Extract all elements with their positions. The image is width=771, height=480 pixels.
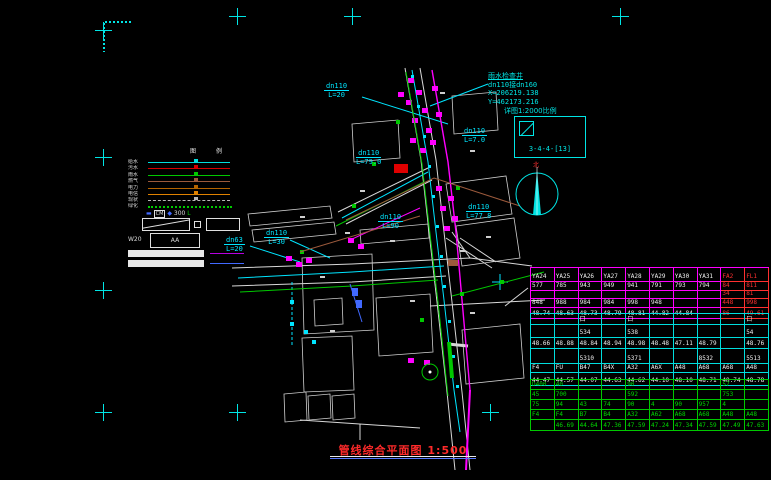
table-cell: 34 (721, 291, 745, 299)
table-cell: 957 (698, 400, 722, 410)
frame-cross-icon (95, 149, 112, 166)
table-cell: 4 (721, 400, 745, 410)
table-cell: 47.59 (698, 420, 722, 431)
table-cell: 48.76 (745, 338, 769, 349)
legend-item-line (148, 200, 230, 201)
title-underline-2 (330, 458, 476, 459)
table-cell: 8532 (698, 349, 722, 364)
pipe-label: dn110L=30 (264, 229, 289, 246)
table-cell (721, 338, 745, 349)
table-cell: FL1 (745, 268, 769, 282)
table-cell: 48.98 (626, 338, 650, 349)
frame-cross-icon (229, 8, 246, 25)
table-section: D4004090574570059275375944374904909574F4… (530, 379, 769, 431)
table-cell (555, 314, 579, 325)
frame-cross-icon (95, 404, 112, 421)
table-cell: 811 (745, 282, 769, 291)
pipe-label: dn63L=20 (224, 236, 245, 253)
table-cell: 40 (555, 380, 579, 390)
table-cell: A68 (674, 410, 698, 420)
frame-cross-icon (95, 22, 112, 39)
table-cell (579, 291, 603, 299)
pipe-label: dn110L=7.0 (462, 127, 487, 144)
coordinate-annotation: 雨水检查井 dn110接dn160 X=206219.138 Y=462173.… (488, 72, 539, 106)
table-cell (602, 325, 626, 338)
legend-item-label: 雨水 (128, 172, 146, 178)
legend-item-marker (194, 165, 198, 168)
table-cell: 47.24 (650, 420, 674, 431)
table-cell (531, 314, 555, 325)
table-cell: FU (555, 364, 579, 373)
table-cell: A48 (674, 364, 698, 373)
legend-item-marker (194, 178, 198, 181)
table-cell: A32 (626, 364, 650, 373)
table-cell (721, 325, 745, 338)
hatch-icon (519, 121, 534, 136)
table-cell: YA31 (698, 268, 722, 282)
table-cell: 785 (555, 282, 579, 291)
table-cell (531, 349, 555, 364)
table-cell: 90 (626, 400, 650, 410)
table-cell (674, 390, 698, 400)
table-cell (674, 325, 698, 338)
gas-structure (448, 260, 458, 266)
table-cell (721, 314, 745, 325)
table-cell: 753 (721, 390, 745, 400)
table-cell: 口 (579, 314, 603, 325)
table-cell: 48.48 (650, 338, 674, 349)
legend-item-line (148, 162, 230, 163)
legend-symbol-row: ▬ CM ◆ 300 L (146, 210, 191, 218)
table-cell: 57 (721, 380, 745, 390)
table-cell: 47.36 (602, 420, 626, 431)
table-cell: 5513 (745, 349, 769, 364)
tree-center-dot (429, 371, 432, 374)
table-cell (698, 314, 722, 325)
table-cell (602, 314, 626, 325)
frame-cross-icon (229, 404, 246, 421)
table-cell (650, 390, 674, 400)
table-cell: 47.34 (674, 420, 698, 431)
legend-item-marker (194, 172, 198, 175)
table-cell: B7 (579, 410, 603, 420)
table-cell (650, 314, 674, 325)
table-cell: A6X (650, 364, 674, 373)
table-cell: 47.59 (626, 420, 650, 431)
table-cell: 577 (531, 282, 555, 291)
table-cell: 848 (531, 299, 555, 308)
table-cell (579, 380, 603, 390)
table-cell: 74 (602, 400, 626, 410)
legend-header-1: 图 (190, 146, 196, 155)
table-cell: 998 (745, 299, 769, 308)
table-cell: 448 (721, 299, 745, 308)
table-cell: A68 (698, 364, 722, 373)
table-cell: A48 (721, 410, 745, 420)
pipe-label: dn110L=79.0 (356, 149, 381, 166)
table-cell: 47.63 (745, 420, 769, 431)
table-cell (674, 380, 698, 390)
table-cell: F4 (555, 410, 579, 420)
table-section: YA24YA25YA26YA27YA28YA29YA30YA31FA2FL157… (530, 267, 769, 319)
legend-item-line (148, 175, 230, 176)
table-cell (531, 325, 555, 338)
table-cell (555, 325, 579, 338)
table-cell (698, 390, 722, 400)
table-cell (650, 380, 674, 390)
table-cell (721, 349, 745, 364)
table-cell: 793 (674, 282, 698, 291)
legend-purple-line (210, 253, 244, 254)
north-arrow-icon (512, 163, 562, 225)
legend-item-line (148, 181, 230, 182)
table-cell: D400 (531, 380, 555, 390)
table-cell (745, 400, 769, 410)
power-line (350, 284, 362, 322)
table-cell: 998 (626, 299, 650, 308)
detail-caption: 详图1:2000比例 (504, 106, 557, 116)
table-section: 口口口5345385448.6648.8848.8448.9448.9848.4… (530, 313, 769, 386)
legend-item-label: 燃气 (128, 178, 146, 184)
table-cell: 791 (650, 282, 674, 291)
table-cell (698, 291, 722, 299)
table-cell (745, 390, 769, 400)
table-cell: 943 (579, 282, 603, 291)
table-cell: 48.88 (555, 338, 579, 349)
table-cell: YA26 (579, 268, 603, 282)
title-underline (330, 456, 476, 457)
table-cell: 5371 (626, 349, 650, 364)
table-cell: A68 (698, 410, 722, 420)
table-cell: 94 (555, 400, 579, 410)
legend-bar-1 (128, 250, 204, 257)
detail-box: 3-4-4-[13] (514, 116, 586, 158)
table-cell: YA28 (626, 268, 650, 282)
table-cell (626, 291, 650, 299)
table-cell: A68 (721, 364, 745, 373)
table-cell: B4 (602, 410, 626, 420)
table-cell: YA27 (602, 268, 626, 282)
table-cell: 794 (698, 282, 722, 291)
legend-item-label: 污水 (128, 165, 146, 171)
detail-label: 3-4-4-[13] (515, 145, 585, 153)
table-cell: 45 (531, 390, 555, 400)
table-cell: YA30 (674, 268, 698, 282)
table-cell: 949 (602, 282, 626, 291)
table-cell: 948 (650, 299, 674, 308)
pipe-label: dn110L=90 (378, 213, 403, 230)
legend-bar-2 (128, 260, 204, 267)
table-cell: YA24 (531, 268, 555, 282)
table-cell: B47 (579, 364, 603, 373)
legend-item-marker (194, 191, 198, 194)
table-cell: 44.64 (579, 420, 603, 431)
table-cell: 538 (626, 325, 650, 338)
table-cell: 534 (579, 325, 603, 338)
table-cell: A48 (745, 364, 769, 373)
table-cell: 592 (626, 390, 650, 400)
table-cell (674, 314, 698, 325)
cad-drawing-canvas[interactable]: 图 例 给水污水雨水燃气电力电信现状 绿化 ▬ CM ◆ 300 L W20 A… (0, 0, 771, 480)
table-cell: A48 (745, 410, 769, 420)
table-cell (745, 380, 769, 390)
table-cell: 84 (721, 282, 745, 291)
table-cell: 47.11 (674, 338, 698, 349)
pipe-label: dn110L=20 (324, 82, 349, 99)
table-cell: B4X (602, 364, 626, 373)
legend-item-marker (194, 197, 198, 200)
red-structure (394, 164, 408, 173)
legend-item-line (148, 188, 230, 189)
table-cell: FA2 (721, 268, 745, 282)
table-cell: 48.66 (531, 338, 555, 349)
table-cell: 90 (626, 380, 650, 390)
table-cell: 54 (745, 325, 769, 338)
table-cell: 90 (674, 400, 698, 410)
legend-header-2: 例 (216, 146, 222, 155)
table-cell (602, 380, 626, 390)
frame-cross-icon (344, 8, 361, 25)
table-cell (674, 349, 698, 364)
table-cell (531, 291, 555, 299)
table-cell: 48.94 (602, 338, 626, 349)
table-cell: A62 (650, 410, 674, 420)
table-cell: 47.49 (721, 420, 745, 431)
legend-item-label: 电信 (128, 191, 146, 197)
table-cell (698, 299, 722, 308)
table-cell (698, 380, 722, 390)
table-cell: 5310 (579, 349, 603, 364)
table-cell (555, 291, 579, 299)
legend-blue-line (210, 263, 244, 264)
table-cell: 46.69 (555, 420, 579, 431)
table-cell: F4 (531, 364, 555, 373)
table-cell (602, 349, 626, 364)
table-cell: 口 (745, 314, 769, 325)
table-cell (555, 349, 579, 364)
table-cell: 81 (745, 291, 769, 299)
legend-item-line (148, 168, 230, 169)
legend-item-marker (194, 185, 198, 188)
table-cell (650, 291, 674, 299)
table-cell: 984 (602, 299, 626, 308)
table-cell: 48.79 (698, 338, 722, 349)
table-cell (602, 390, 626, 400)
table-cell (602, 291, 626, 299)
table-cell: 988 (555, 299, 579, 308)
legend-item-marker (194, 159, 198, 162)
table-cell: A32 (626, 410, 650, 420)
legend-item-line (148, 194, 230, 195)
table-cell: 口 (626, 314, 650, 325)
table-cell: YA25 (555, 268, 579, 282)
table-cell (579, 390, 603, 400)
table-cell (674, 291, 698, 299)
frame-cross-icon (612, 8, 629, 25)
table-cell: 75 (531, 400, 555, 410)
table-cell: 700 (555, 390, 579, 400)
table-cell: 4 (650, 400, 674, 410)
table-cell: 43 (579, 400, 603, 410)
table-cell: YA29 (650, 268, 674, 282)
table-cell: 984 (579, 299, 603, 308)
water-pipeline (238, 70, 508, 432)
table-cell: 941 (626, 282, 650, 291)
sewer-structures (286, 78, 458, 365)
table-cell (698, 325, 722, 338)
pipe-label: dn110L=77.8 (466, 203, 491, 220)
legend-item-label: 给水 (128, 159, 146, 165)
table-cell: F4 (531, 410, 555, 420)
frame-cross-icon (482, 404, 499, 421)
table-cell (650, 349, 674, 364)
table-cell: 48.84 (579, 338, 603, 349)
table-cell (674, 299, 698, 308)
table-cell (531, 420, 555, 431)
table-cell (650, 325, 674, 338)
sewer-pipeline (350, 70, 470, 470)
frame-cross-icon (95, 282, 112, 299)
legend-item-label: 电力 (128, 185, 146, 191)
